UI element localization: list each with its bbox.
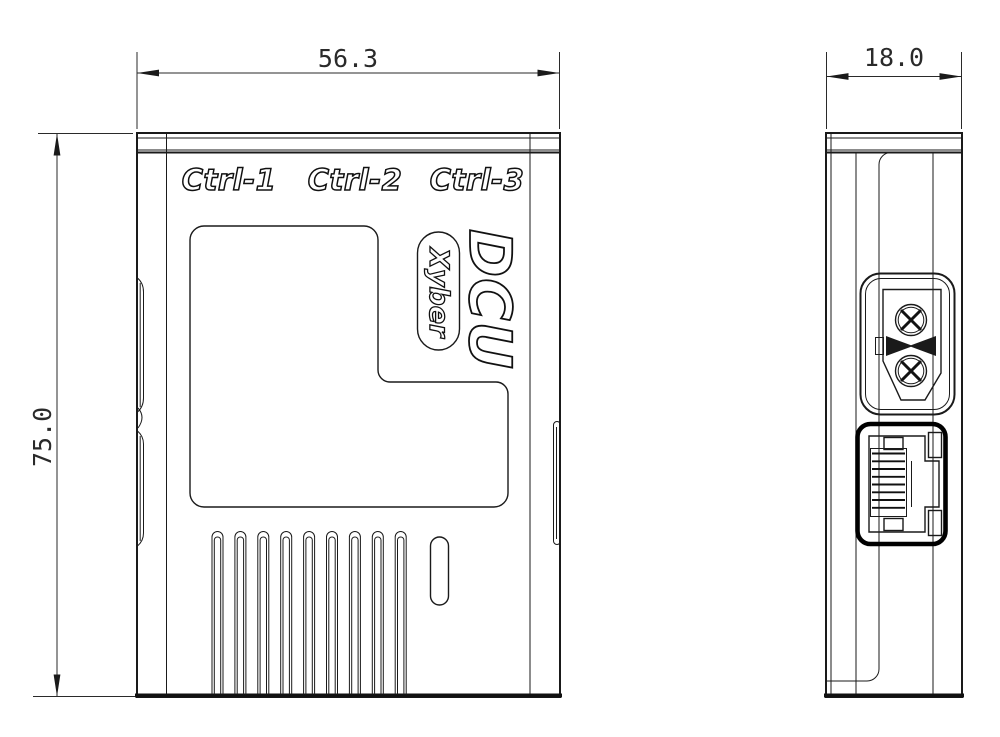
dim-arrow-left xyxy=(137,70,159,77)
side-inner-panel-outline xyxy=(826,153,893,682)
side-view xyxy=(824,133,964,697)
port-label-ctrl1: Ctrl-1 xyxy=(182,163,277,197)
dim-arrow-left xyxy=(827,73,849,80)
front-view: Ctrl-1 Ctrl-2 Ctrl-3 DCU Xyber xyxy=(135,133,562,697)
power-pin-top xyxy=(896,305,927,336)
ethernet-port xyxy=(858,424,946,544)
brand-text: Xyber xyxy=(423,246,454,339)
oval-slot xyxy=(431,537,449,605)
dim-arrow-right xyxy=(940,73,962,80)
ethernet-top-tab xyxy=(884,438,903,450)
ethernet-right-contact-upper xyxy=(929,433,942,458)
ethernet-pins xyxy=(872,454,905,508)
dim-depth-value: 18.0 xyxy=(864,43,924,72)
vent-ribs xyxy=(212,532,406,695)
left-clip-upper xyxy=(138,278,144,428)
dim-height-value: 75.0 xyxy=(28,407,57,467)
dim-width-value: 56.3 xyxy=(318,44,378,73)
ethernet-pin-block xyxy=(871,449,907,517)
power-connector-bowtie xyxy=(886,336,936,356)
dim-arrow-top xyxy=(54,134,61,156)
ethernet-right-contact-lower xyxy=(929,511,942,536)
port-label-ctrl3: Ctrl-3 xyxy=(430,163,525,197)
front-body-outline xyxy=(137,133,560,697)
dim-arrow-right xyxy=(538,70,560,77)
left-clip-lower xyxy=(138,431,144,546)
dimension-width: 56.3 xyxy=(137,44,560,129)
dimension-depth: 18.0 xyxy=(827,43,962,129)
technical-drawing-page: Ctrl-1 Ctrl-2 Ctrl-3 DCU Xyber xyxy=(0,0,1000,737)
power-connector xyxy=(861,274,955,415)
product-name-text: DCU xyxy=(456,229,524,370)
power-pin-bottom xyxy=(896,356,927,387)
port-label-ctrl2: Ctrl-2 xyxy=(308,163,403,197)
technical-drawing: Ctrl-1 Ctrl-2 Ctrl-3 DCU Xyber xyxy=(0,0,1000,737)
ethernet-bottom-tab xyxy=(884,519,903,531)
dim-arrow-bottom xyxy=(54,675,61,697)
dimension-height: 75.0 xyxy=(28,134,135,697)
